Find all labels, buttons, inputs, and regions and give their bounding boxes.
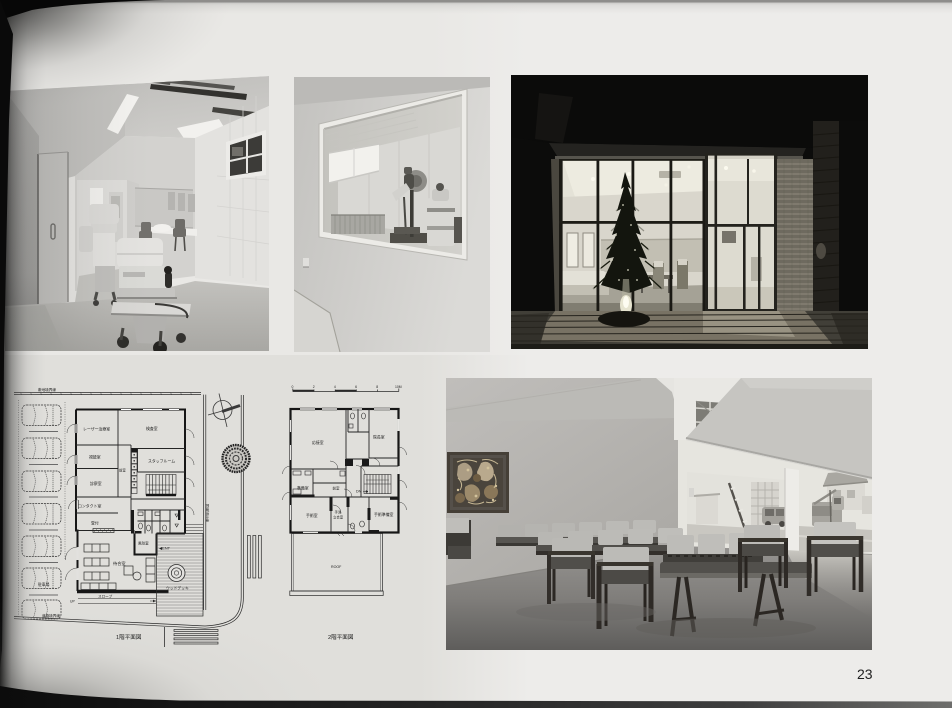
svg-text:2階平面図: 2階平面図	[328, 633, 354, 641]
svg-text:DN: DN	[356, 490, 362, 494]
svg-text:0: 0	[292, 385, 294, 389]
svg-text:準備室: 準備室	[297, 486, 309, 491]
svg-text:スタッフルーム: スタッフルーム	[148, 459, 175, 464]
svg-text:前室: 前室	[333, 486, 341, 491]
svg-text:コンタクト室: コンタクト室	[78, 504, 101, 509]
svg-text:院長室: 院長室	[373, 435, 385, 440]
svg-text:10M: 10M	[395, 385, 402, 389]
svg-text:2: 2	[313, 385, 315, 389]
svg-text:待合室: 待合室	[113, 560, 126, 567]
svg-text:レーザー治療室: レーザー治療室	[83, 427, 110, 432]
svg-text:受付: 受付	[91, 521, 99, 526]
svg-text:前室: 前室	[119, 468, 126, 473]
svg-text:国道旭川線: 国道旭川線	[205, 504, 210, 522]
svg-text:手洗: 手洗	[335, 510, 342, 515]
svg-text:手術室: 手術室	[306, 513, 318, 518]
svg-text:8: 8	[376, 385, 378, 389]
svg-text:診察室: 診察室	[90, 481, 102, 486]
svg-text:風除室: 風除室	[138, 541, 149, 546]
svg-text:手術準備室: 手術準備室	[374, 512, 394, 517]
svg-text:4: 4	[334, 385, 336, 389]
svg-text:ウッドデッキ: ウッドデッキ	[166, 586, 189, 591]
svg-text:6: 6	[355, 385, 357, 389]
svg-text:検査室: 検査室	[146, 426, 158, 431]
svg-text:応接室: 応接室	[312, 440, 324, 445]
svg-text:23: 23	[857, 666, 873, 682]
svg-text:視能室: 視能室	[89, 455, 101, 460]
svg-text:立合室: 立合室	[333, 515, 344, 520]
svg-text:ROOF: ROOF	[331, 565, 342, 569]
